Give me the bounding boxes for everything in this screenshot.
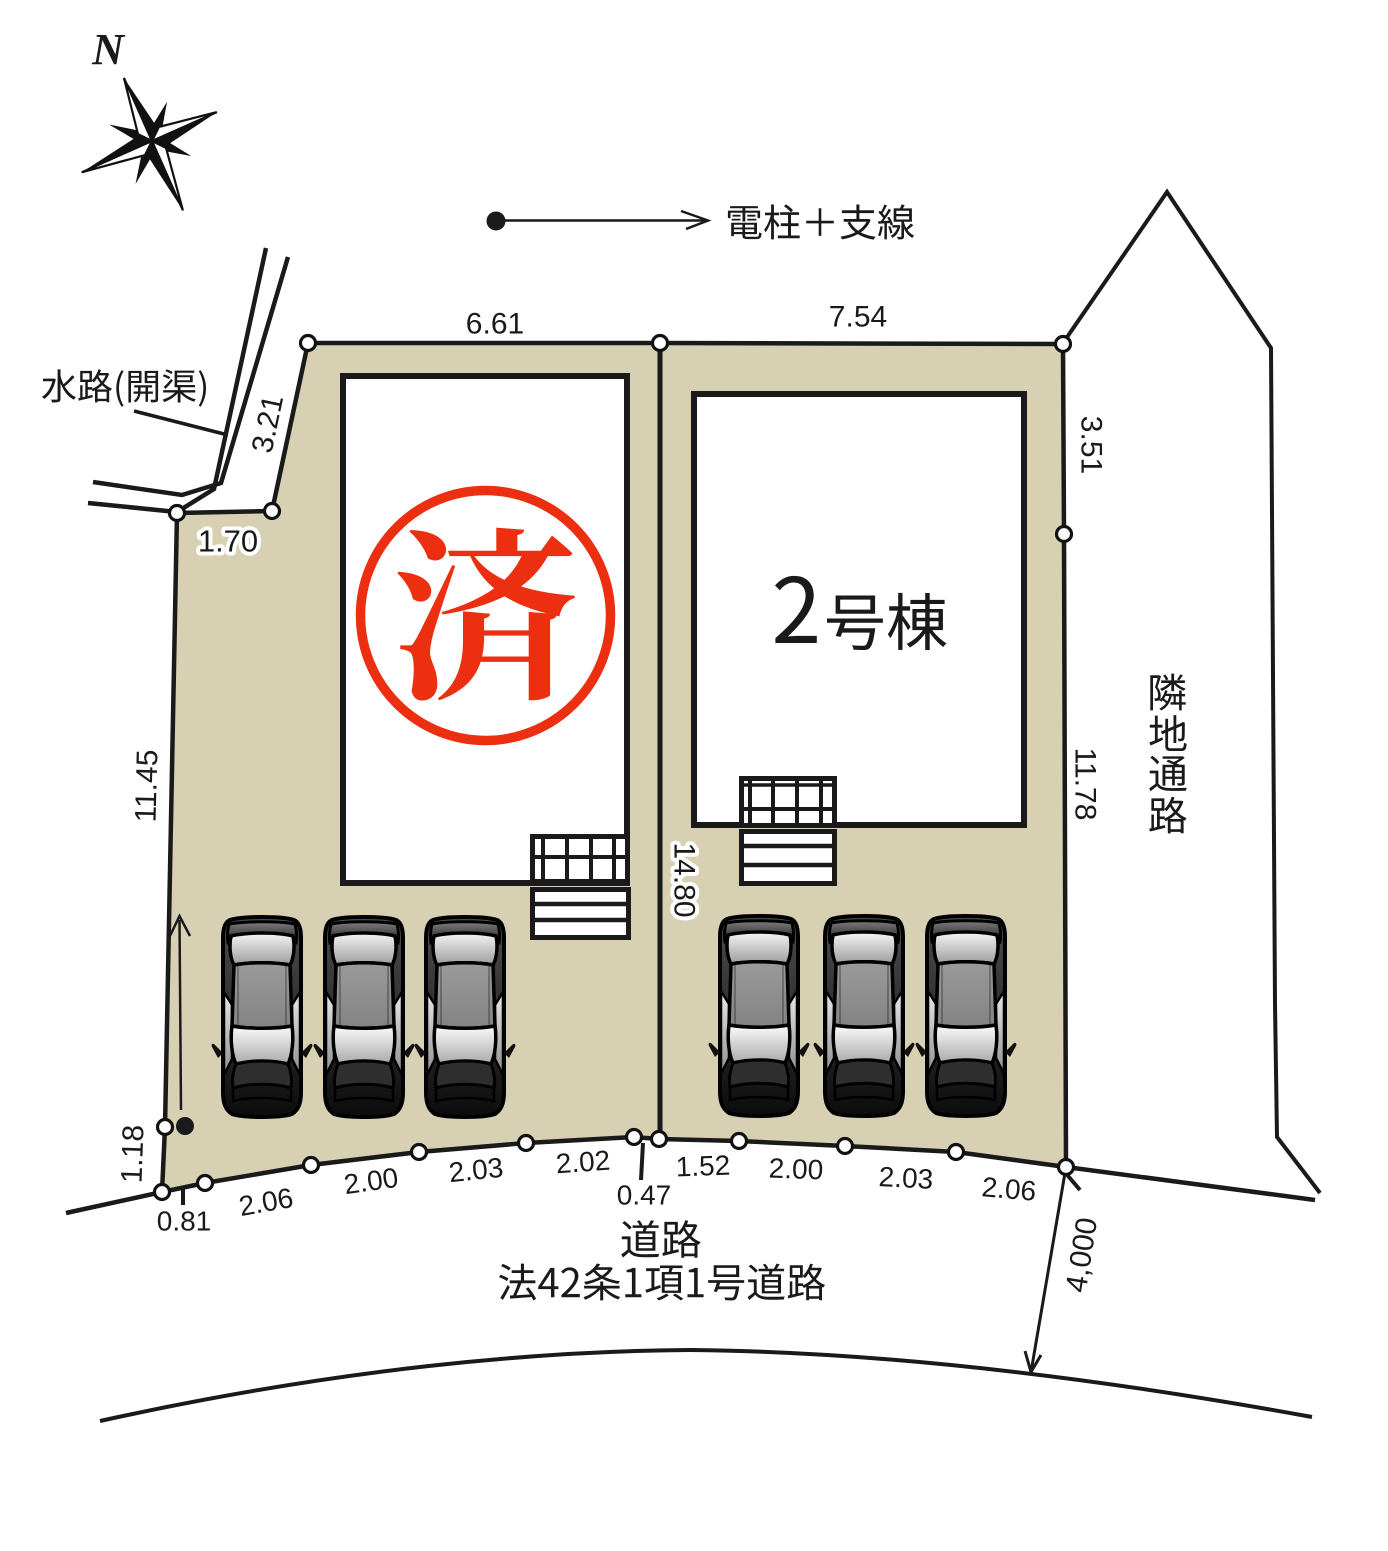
svg-text:0.81: 0.81 [157,1206,212,1237]
svg-text:2.03: 2.03 [878,1161,934,1195]
svg-text:1.18: 1.18 [115,1124,150,1184]
svg-text:2.02: 2.02 [555,1145,612,1180]
svg-text:11.45: 11.45 [130,749,165,823]
svg-text:1.70: 1.70 [198,524,258,559]
svg-text:2.00: 2.00 [768,1153,824,1186]
svg-text:7.54: 7.54 [829,301,887,334]
svg-text:0.47: 0.47 [617,1180,672,1211]
svg-text:N: N [91,25,126,74]
svg-text:1.52: 1.52 [675,1150,731,1183]
svg-text:11.78: 11.78 [1069,748,1102,821]
svg-text:6.61: 6.61 [466,308,524,341]
svg-text:2.06: 2.06 [981,1171,1038,1207]
svg-text:3.51: 3.51 [1075,416,1108,474]
svg-text:14.80: 14.80 [668,842,701,917]
svg-text:2.03: 2.03 [447,1152,504,1189]
